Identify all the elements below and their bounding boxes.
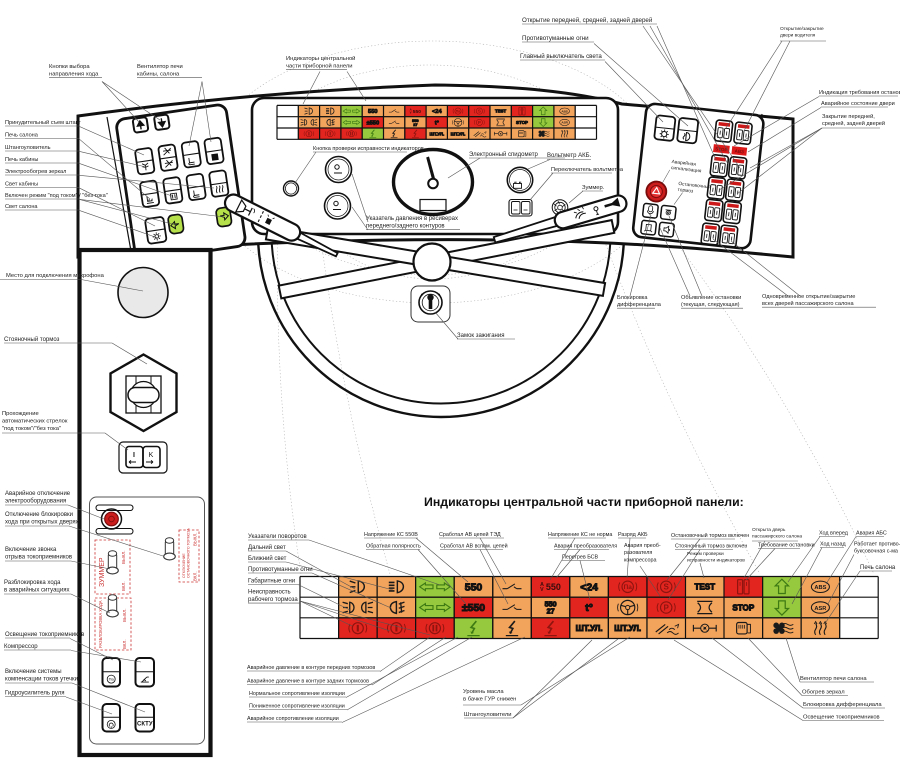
svg-text:Печь салона: Печь салона (5, 133, 39, 139)
svg-text:Гидроусилитель руля: Гидроусилитель руля (5, 691, 65, 697)
svg-text:V: V (410, 110, 412, 114)
svg-text:Свет кабины: Свет кабины (5, 182, 38, 188)
svg-text:в аварийных ситуациях: в аварийных ситуациях (4, 587, 69, 594)
svg-text:Прохождение: Прохождение (2, 411, 39, 417)
svg-text:Сработал АВ цепей ТЭД: Сработал АВ цепей ТЭД (439, 531, 501, 538)
svg-text:"под током"/"без тока": "под током"/"без тока" (2, 426, 61, 432)
svg-text:t°: t° (585, 603, 593, 614)
svg-text:Уровень масла: Уровень масла (463, 689, 504, 695)
svg-text:Разряд АКБ: Разряд АКБ (618, 532, 648, 538)
svg-text:S: S (664, 583, 670, 592)
svg-text:двери водителя: двери водителя (780, 33, 816, 38)
svg-text:Аварийное состояние двери: Аварийное состояние двери (821, 100, 895, 107)
svg-text:переднего/заднего контуров: переднего/заднего контуров (366, 224, 445, 230)
svg-text:буксовочная с-ма: буксовочная с-ма (854, 549, 898, 555)
svg-text:550: 550 (413, 109, 421, 115)
svg-text:P: P (478, 120, 481, 125)
svg-text:Противотуманные огни: Противотуманные огни (248, 567, 313, 573)
svg-text:отрыва токоприемников: отрыва токоприемников (5, 555, 72, 561)
svg-text:Аварийное давление в контуре п: Аварийное давление в контуре передних то… (247, 664, 375, 671)
svg-text:550: 550 (465, 582, 483, 593)
svg-text:ОТКЛЮЧЕНИЕ: ОТКЛЮЧЕНИЕ (182, 553, 186, 578)
svg-text:хода при открытых дверях: хода при открытых дверях (5, 520, 79, 526)
svg-text:ASR: ASR (814, 606, 826, 612)
svg-text:(текущая, следующая): (текущая, следующая) (681, 302, 740, 308)
svg-text:Свет салона: Свет салона (5, 204, 38, 210)
svg-text:TEST: TEST (694, 583, 715, 592)
svg-text:Режим проверки: Режим проверки (687, 551, 724, 557)
svg-text:Обратная полярность: Обратная полярность (366, 544, 421, 550)
svg-text:<24: <24 (580, 582, 598, 593)
svg-text:TEST: TEST (495, 109, 507, 114)
svg-text:Аварийное отключение: Аварийное отключение (5, 490, 71, 497)
svg-text:Открытие/закрытие: Открытие/закрытие (780, 26, 824, 32)
svg-text:Место для подключения микро: Место для подключения микрофона (6, 273, 105, 279)
svg-text:направления хода: направления хода (49, 71, 99, 77)
svg-text:ВКЛ.: ВКЛ. (122, 639, 127, 649)
svg-text:Освещение токоприемников: Освещение токоприемников (803, 715, 880, 721)
svg-text:части приборной панели: части приборной панели (286, 62, 353, 69)
svg-text:Напряжение КС 550В: Напряжение КС 550В (364, 532, 418, 538)
svg-text:Па: Па (456, 109, 461, 113)
svg-text:ВЫКЛ.: ВЫКЛ. (121, 551, 126, 564)
svg-text:27: 27 (547, 608, 555, 616)
svg-text:Штангоуловители: Штангоуловители (464, 712, 511, 718)
svg-text:Противотуманные огни: Противотуманные огни (522, 35, 589, 42)
svg-text:Стояночный тормоз: Стояночный тормоз (4, 336, 60, 343)
svg-text:электрооборудования: электрооборудования (5, 499, 66, 505)
svg-text:Индикаторы центральной: Индикаторы центральной (286, 55, 355, 62)
svg-text:Вентилятор печи салона: Вентилятор печи салона (800, 676, 867, 682)
svg-text:Открыта дверь: Открыта дверь (752, 527, 786, 533)
svg-text:Габаритные огни: Габаритные огни (248, 579, 295, 585)
svg-text:Включение системы: Включение системы (5, 669, 62, 675)
svg-text:исправности индикаторов: исправности индикаторов (687, 558, 745, 563)
svg-text:V: V (540, 587, 544, 593)
svg-text:Па: Па (624, 584, 633, 591)
svg-text:Замок зажигания: Замок зажигания (457, 333, 504, 339)
svg-text:Кнопка проверки исправности ин: Кнопка проверки исправности индикаторов (313, 146, 424, 152)
svg-text:Авария преобразователя: Авария преобразователя (554, 544, 617, 550)
svg-text:Нормальное сопротивление изоля: Нормальное сопротивление изоляции (249, 691, 345, 697)
svg-text:ШТ.УЛ.: ШТ.УЛ. (451, 131, 466, 136)
svg-text:Включен режим "под током" / ": Включен режим "под током" / "без тока" (5, 193, 108, 199)
svg-text:дифференциала: дифференциала (617, 302, 662, 308)
svg-text:Включение звонка: Включение звонка (5, 547, 57, 553)
svg-text:Закрытие передней,: Закрытие передней, (822, 113, 875, 120)
svg-text:P: P (664, 603, 670, 612)
svg-text:Переключатель вольтметра: Переключатель вольтметра (551, 167, 624, 173)
svg-text:Электрообогрев зеркал: Электрообогрев зеркал (5, 169, 66, 175)
svg-text:Авария преоб-: Авария преоб- (624, 543, 661, 549)
svg-text:Вольтметр АКБ.: Вольтметр АКБ. (547, 153, 592, 159)
svg-text:Зуммер.: Зуммер. (582, 185, 605, 191)
svg-text:Блокировка: Блокировка (617, 295, 648, 301)
svg-text:рабочего тормоза: рабочего тормоза (248, 597, 298, 603)
svg-text:ASR: ASR (561, 121, 568, 125)
svg-text:Компрессор: Компрессор (4, 644, 38, 650)
svg-text:Принудительный съем штанг: Принудительный съем штанг (5, 119, 81, 126)
svg-text:ШТ.УЛ.: ШТ.УЛ. (576, 624, 603, 633)
svg-text:Сработал АВ вспом. цепей: Сработал АВ вспом. цепей (440, 543, 508, 550)
svg-text:ВКЛ.: ВКЛ. (193, 571, 198, 581)
svg-text:I: I (133, 452, 135, 459)
svg-text:всех дверей пассажирского сало: всех дверей пассажирского салона (762, 300, 854, 307)
svg-text:пассажирского салона: пассажирского салона (752, 534, 802, 539)
svg-text:Пониженное сопротивление изоля: Пониженное сопротивление изоляции (249, 704, 345, 710)
svg-text:Неисправность: Неисправность (248, 590, 291, 596)
svg-text:STOP: STOP (516, 120, 528, 125)
svg-text:Ближний свет: Ближний свет (248, 555, 287, 562)
svg-text:автоматических стрелок: автоматических стрелок (2, 418, 68, 424)
svg-text:STOP: STOP (732, 603, 754, 612)
svg-text:Кнопки выбора: Кнопки выбора (49, 64, 90, 70)
svg-text:Авария АБС: Авария АБС (856, 531, 887, 537)
svg-text:550: 550 (368, 109, 378, 115)
svg-text:K: K (149, 452, 154, 459)
svg-text:±550: ±550 (462, 603, 485, 614)
svg-text:АВЗ: АВЗ (734, 148, 744, 154)
svg-text:Освещение токоприемников: Освещение токоприемников (5, 632, 84, 638)
svg-text:ABS: ABS (814, 585, 826, 591)
svg-text:Требование остановки: Требование остановки (758, 543, 815, 549)
svg-text:Ход назад: Ход назад (820, 542, 846, 548)
svg-text:550: 550 (546, 582, 561, 592)
svg-text:Аварийное сопротивление изоляц: Аварийное сопротивление изоляции (247, 715, 339, 722)
svg-text:ВКЛ.: ВКЛ. (121, 581, 126, 591)
svg-text:средней, задней дверей: средней, задней дверей (822, 120, 885, 127)
svg-text:Печь салона: Печь салона (860, 565, 896, 571)
svg-text:Блокировка дифференциала: Блокировка дифференциала (803, 702, 882, 708)
svg-text:Индикация требования остановки: Индикация требования остановки (819, 90, 900, 96)
svg-text:ШТ.УЛ.: ШТ.УЛ. (614, 624, 641, 633)
svg-text:в бачке ГУР снижен: в бачке ГУР снижен (463, 696, 516, 702)
svg-text:Разблокировка хода: Разблокировка хода (4, 580, 61, 586)
svg-text:Главный выключатель света: Главный выключатель света (520, 53, 602, 60)
svg-text:СКТУ: СКТУ (137, 722, 153, 728)
svg-text:27: 27 (413, 122, 417, 127)
svg-text:<24: <24 (432, 109, 443, 115)
svg-text:Указатели поворотов: Указатели поворотов (248, 534, 307, 540)
svg-text:ВЫКЛ.: ВЫКЛ. (122, 609, 127, 622)
svg-text:Напряжение КС не норма: Напряжение КС не норма (548, 532, 612, 538)
svg-text:Печь кабины: Печь кабины (5, 157, 38, 163)
svg-text:Вентилятор печи: Вентилятор печи (137, 64, 183, 70)
svg-text:ШТ.УЛ.: ШТ.УЛ. (429, 131, 444, 136)
svg-text:ОСТАНОВОЧНОГО ТОРМОЗА: ОСТАНОВОЧНОГО ТОРМОЗА (187, 528, 191, 578)
svg-text:Отключение блокировки: Отключение блокировки (5, 512, 73, 518)
svg-text:компрессора: компрессора (624, 557, 656, 563)
svg-text:Одновременное открытие/закрыти: Одновременное открытие/закрытие (762, 294, 855, 300)
svg-text:ВЫКЛ.: ВЫКЛ. (193, 533, 198, 546)
svg-text:Ход вперед: Ход вперед (819, 531, 849, 537)
svg-text:Индикаторы центральной части п: Индикаторы центральной части приборной п… (424, 495, 744, 509)
svg-text:Стояночный тормоз включен: Стояночный тормоз включен (675, 543, 747, 550)
svg-text:Обогрев зеркал: Обогрев зеркал (802, 690, 845, 696)
svg-text:Электронный спидометр: Электронный спидометр (469, 151, 538, 158)
svg-text:ЗУММЕР: ЗУММЕР (99, 557, 106, 587)
svg-text:t°: t° (435, 120, 440, 126)
svg-text:±550: ±550 (366, 120, 379, 126)
svg-text:Остановочный тормоз включен: Остановочный тормоз включен (671, 532, 749, 539)
svg-text:Работает противо-: Работает противо- (854, 542, 900, 548)
svg-text:Открытие передней, средней, за: Открытие передней, средней, задней двере… (522, 17, 653, 24)
svg-text:разователя: разователя (624, 550, 652, 556)
svg-text:Дальний свет: Дальний свет (248, 544, 286, 551)
svg-text:ABS: ABS (561, 109, 568, 113)
svg-text:Перегрев БСВ: Перегрев БСВ (562, 555, 599, 561)
svg-text:Штангоуловитель: Штангоуловитель (5, 145, 51, 151)
svg-text:Па: Па (109, 677, 115, 682)
svg-text:S: S (478, 109, 481, 114)
svg-text:Аварийное давление в контуре з: Аварийное давление в контуре задних торм… (247, 678, 369, 685)
svg-text:Указатель давления в ресиверах: Указатель давления в ресиверах (366, 216, 458, 222)
svg-text:кабины, салона: кабины, салона (137, 71, 180, 77)
svg-text:компенсации токов утечки: компенсации токов утечки (5, 677, 78, 683)
